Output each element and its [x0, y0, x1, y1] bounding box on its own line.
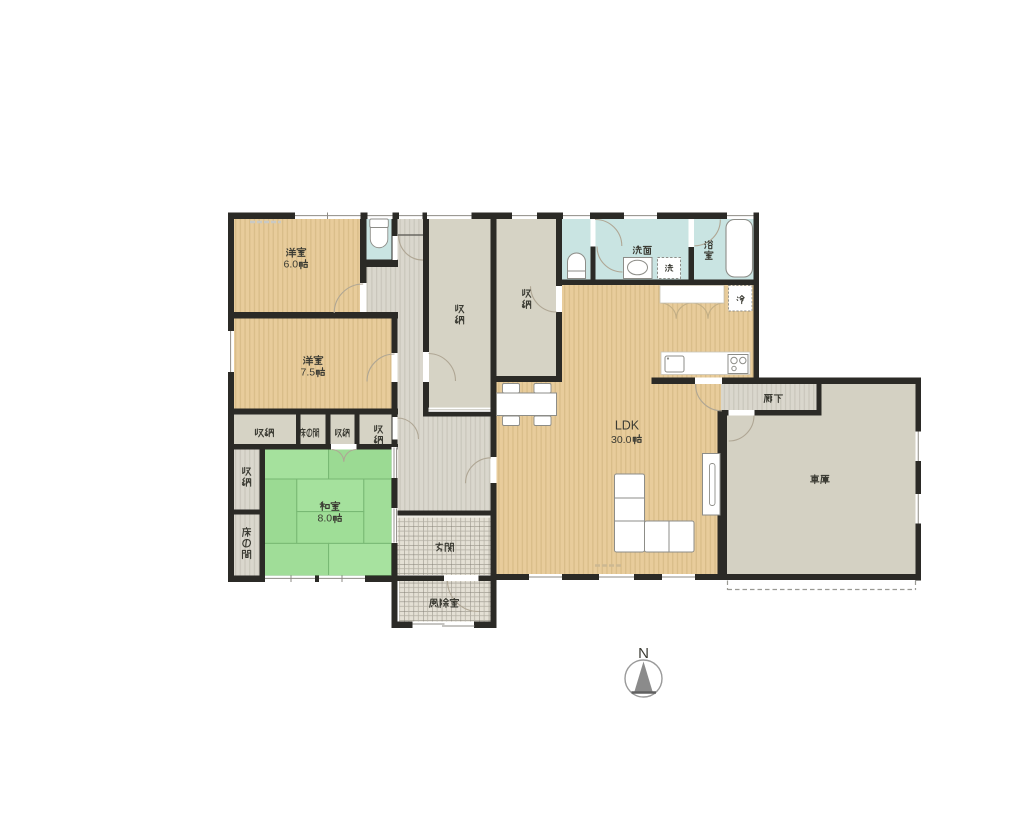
- svg-text:LDK: LDK: [615, 419, 640, 433]
- svg-text:6.0: 6.0: [284, 259, 299, 271]
- svg-text:7.5: 7.5: [301, 367, 316, 379]
- svg-text:8.0: 8.0: [318, 513, 333, 525]
- svg-text:30.0: 30.0: [611, 434, 632, 446]
